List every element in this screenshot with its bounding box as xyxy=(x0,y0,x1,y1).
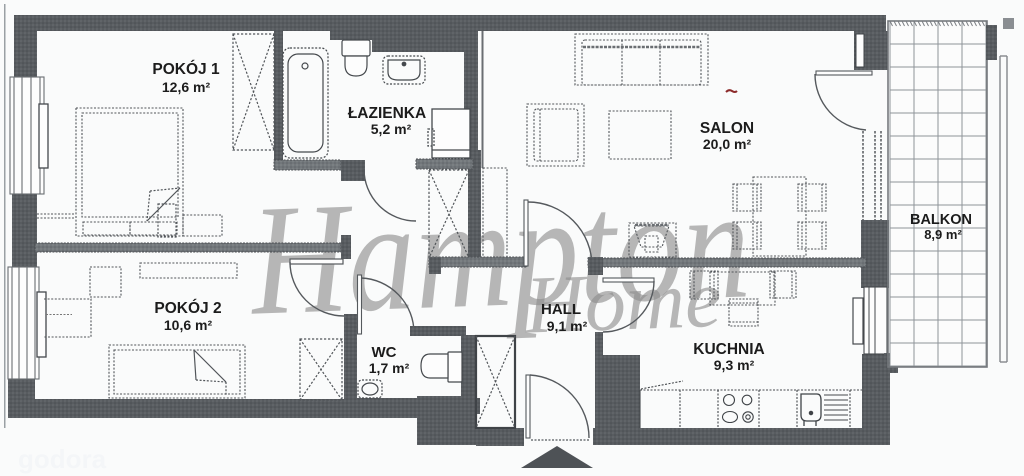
svg-text:5,2 m²: 5,2 m² xyxy=(371,121,412,137)
svg-text:WC: WC xyxy=(372,344,397,361)
svg-text:12,6 m²: 12,6 m² xyxy=(162,79,211,95)
svg-text:20,0 m²: 20,0 m² xyxy=(703,136,752,152)
svg-text:ŁAZIENKA: ŁAZIENKA xyxy=(348,105,426,122)
svg-text:9,1 m²: 9,1 m² xyxy=(547,318,588,334)
svg-text:9,3 m²: 9,3 m² xyxy=(714,357,755,373)
svg-text:1,7 m²: 1,7 m² xyxy=(369,360,410,376)
svg-text:HALL: HALL xyxy=(541,301,581,318)
svg-text:POKÓJ 2: POKÓJ 2 xyxy=(154,299,221,317)
svg-text:SALON: SALON xyxy=(700,120,754,137)
svg-text:KUCHNIA: KUCHNIA xyxy=(693,341,764,358)
svg-text:godora: godora xyxy=(18,444,107,474)
svg-text:BALKON: BALKON xyxy=(910,212,972,228)
svg-text:POKÓJ 1: POKÓJ 1 xyxy=(152,60,220,78)
svg-text:10,6 m²: 10,6 m² xyxy=(164,317,213,333)
svg-text:8,9 m²: 8,9 m² xyxy=(924,227,962,242)
